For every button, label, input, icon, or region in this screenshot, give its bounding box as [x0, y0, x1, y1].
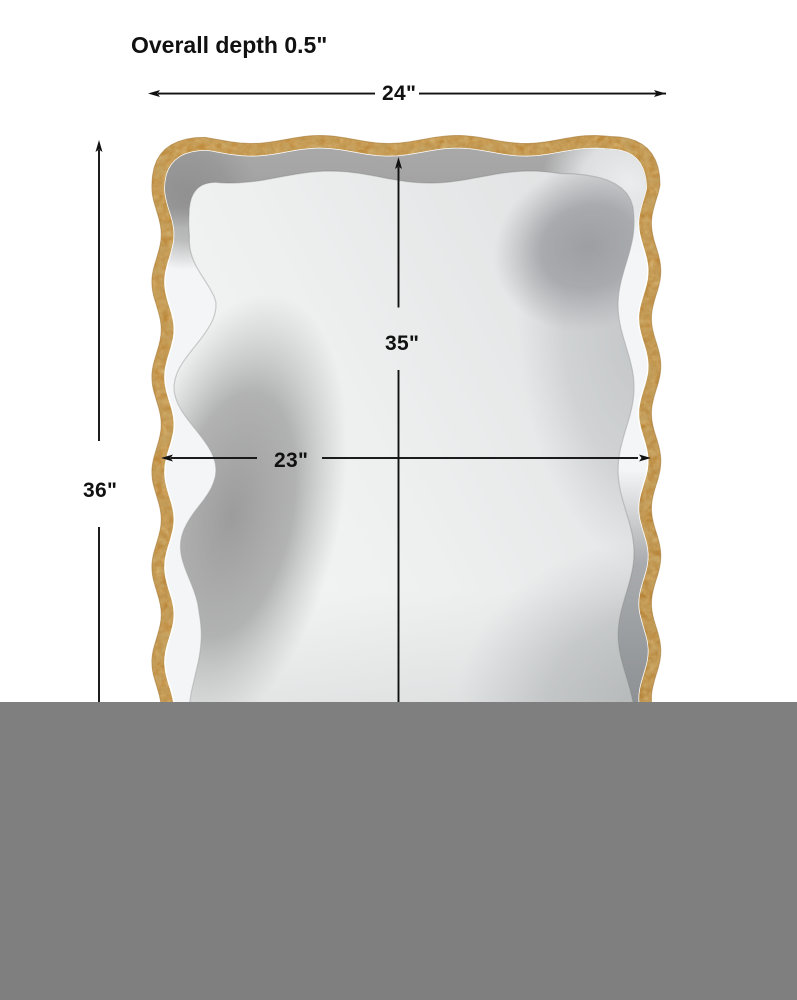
- svg-text:Overall depth 0.5": Overall depth 0.5": [131, 32, 327, 58]
- svg-text:23": 23": [274, 449, 308, 472]
- svg-text:36": 36": [83, 479, 117, 502]
- svg-text:35": 35": [385, 332, 419, 355]
- svg-text:24": 24": [382, 82, 416, 105]
